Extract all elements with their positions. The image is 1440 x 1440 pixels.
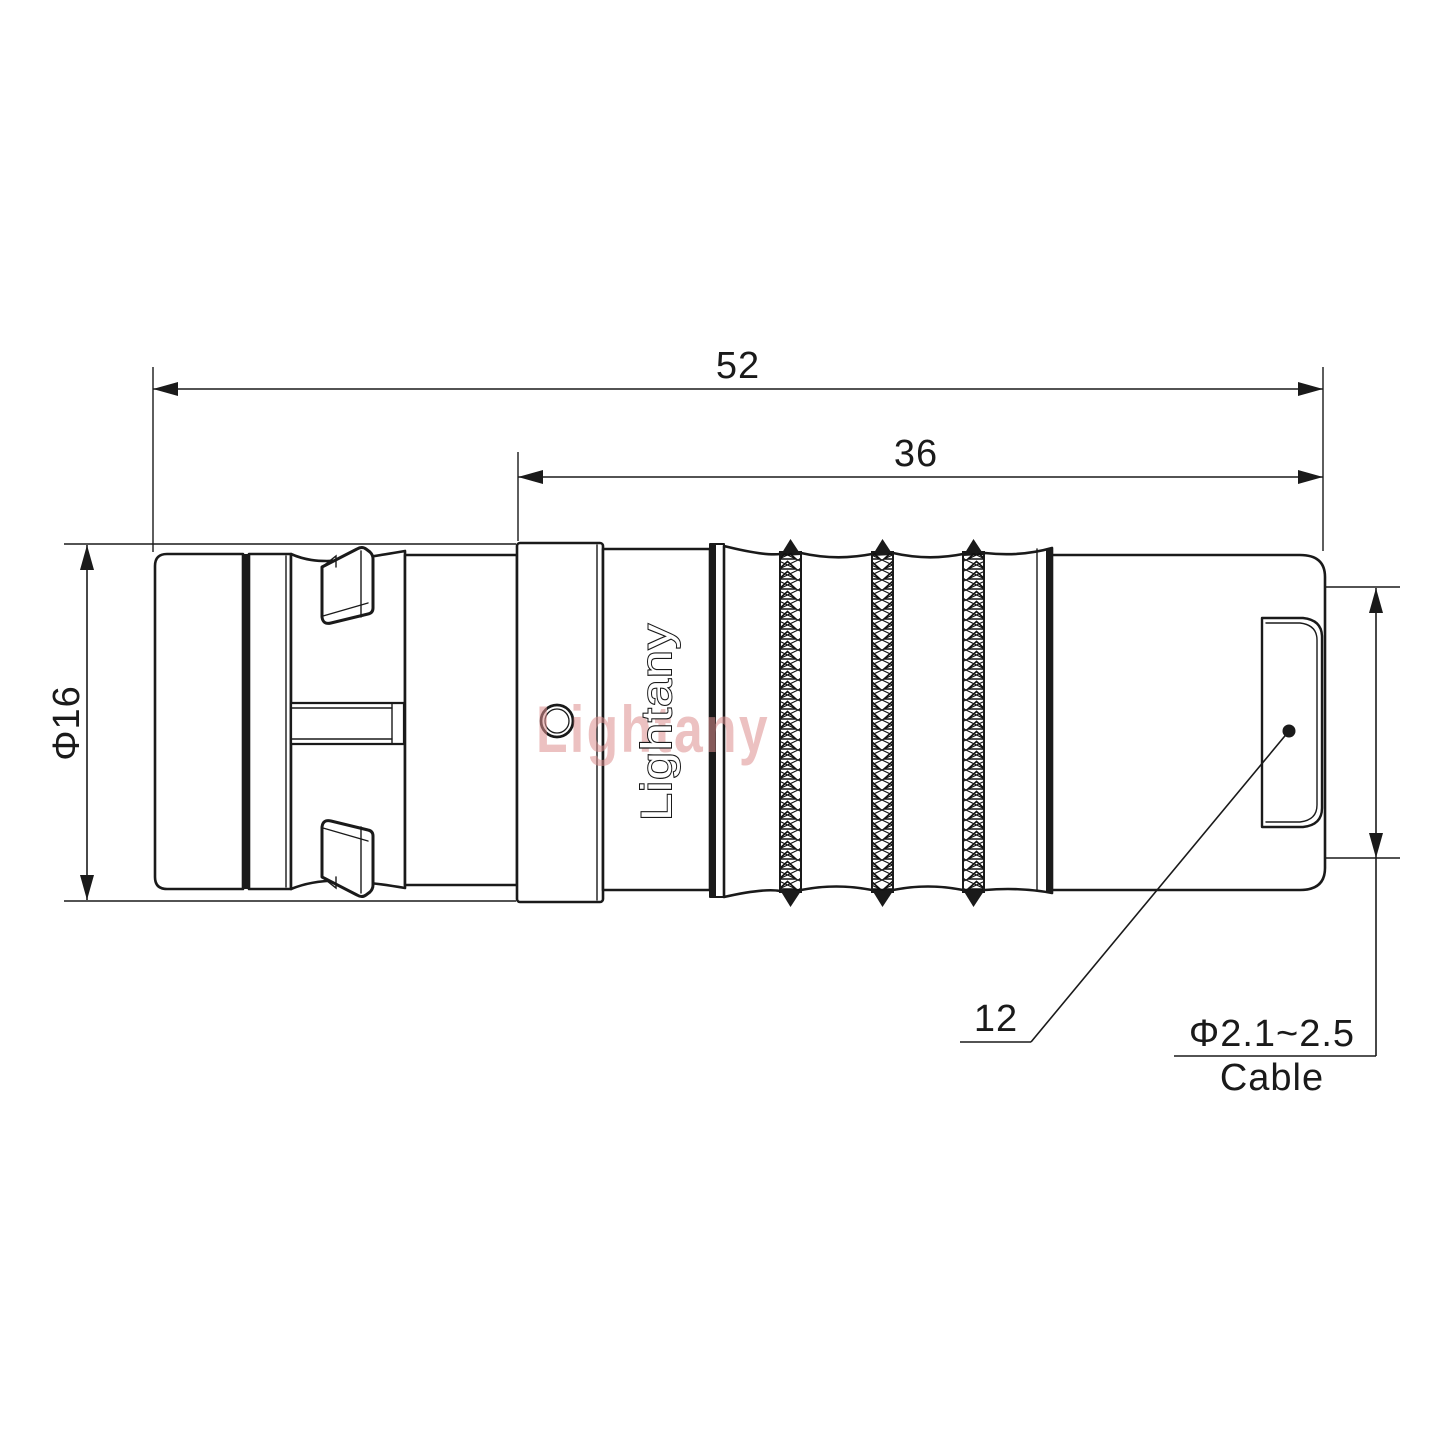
latch-tab-top xyxy=(322,548,373,624)
barrel xyxy=(405,555,517,885)
cable-word-label: Cable xyxy=(1220,1057,1324,1099)
engraving-text: Lightany xyxy=(633,623,681,821)
knurl-band-2 xyxy=(872,539,893,907)
cable-entry-recess xyxy=(1262,618,1322,827)
knurl-band-1 xyxy=(780,539,801,907)
dimension-rear-length: 36 xyxy=(518,433,1323,541)
dimension-overall-length: 52 xyxy=(153,345,1323,552)
latch-tab-bottom xyxy=(322,821,373,897)
dim-52-label: 52 xyxy=(716,345,760,387)
dim-diameter-label: Φ16 xyxy=(46,685,88,761)
drawing-page: Lightany Lightany 52 36 Φ16 xyxy=(0,0,1440,1440)
latch-recess xyxy=(291,703,404,744)
dim-36-label: 36 xyxy=(894,433,938,475)
connector-technical-drawing: Lightany Lightany 52 36 Φ16 xyxy=(0,0,1440,1440)
knurl-band-3 xyxy=(963,539,984,907)
front-cap xyxy=(155,554,243,889)
cable-range-label: Φ2.1~2.5 xyxy=(1189,1013,1355,1055)
front-ring xyxy=(249,554,291,889)
nut-ref-label: 12 xyxy=(974,998,1018,1040)
